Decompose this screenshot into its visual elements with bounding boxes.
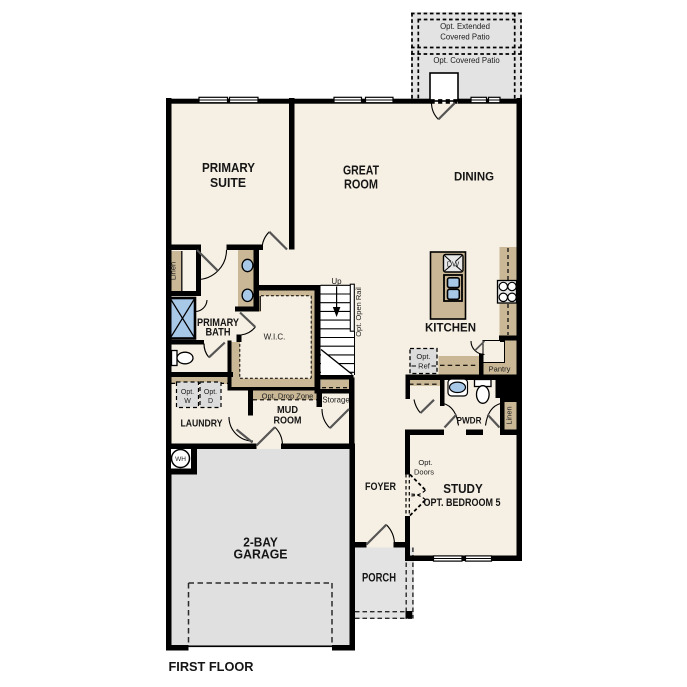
svg-text:Opt. Extended: Opt. Extended bbox=[440, 22, 490, 31]
svg-text:FOYER: FOYER bbox=[365, 481, 396, 493]
svg-text:Doors: Doors bbox=[414, 468, 434, 477]
svg-text:Linen: Linen bbox=[505, 406, 514, 424]
svg-text:OPT. BEDROOM 5: OPT. BEDROOM 5 bbox=[424, 497, 501, 509]
svg-text:KITCHEN: KITCHEN bbox=[425, 321, 476, 335]
svg-text:Up: Up bbox=[331, 277, 342, 286]
svg-text:GARAGE: GARAGE bbox=[234, 547, 288, 562]
svg-text:BATH: BATH bbox=[206, 327, 231, 339]
svg-text:D: D bbox=[208, 398, 213, 405]
svg-text:Covered Patio: Covered Patio bbox=[440, 33, 490, 42]
svg-text:Opt.: Opt. bbox=[416, 352, 430, 361]
svg-text:Opt.: Opt. bbox=[181, 389, 194, 396]
svg-text:Opt. Covered Patio: Opt. Covered Patio bbox=[433, 56, 500, 65]
svg-text:FIRST FLOOR: FIRST FLOOR bbox=[169, 659, 254, 674]
svg-text:Storage: Storage bbox=[322, 396, 349, 405]
svg-text:STUDY: STUDY bbox=[443, 481, 483, 496]
svg-text:Pantry: Pantry bbox=[489, 365, 511, 374]
svg-text:DINING: DINING bbox=[454, 170, 494, 184]
svg-text:PWDR: PWDR bbox=[457, 416, 482, 426]
svg-text:DW: DW bbox=[447, 260, 460, 269]
svg-text:ROOM: ROOM bbox=[274, 415, 302, 427]
svg-text:PRIMARY: PRIMARY bbox=[202, 160, 255, 175]
svg-text:ROOM: ROOM bbox=[344, 177, 378, 192]
svg-text:GREAT: GREAT bbox=[343, 163, 379, 178]
svg-text:W: W bbox=[184, 398, 191, 405]
svg-text:Ref: Ref bbox=[418, 362, 431, 371]
svg-text:LAUNDRY: LAUNDRY bbox=[181, 418, 223, 430]
svg-text:Opt. Open Rail: Opt. Open Rail bbox=[354, 287, 363, 337]
svg-text:Opt.: Opt. bbox=[418, 458, 432, 467]
svg-text:WH: WH bbox=[175, 456, 186, 463]
svg-text:SUITE: SUITE bbox=[210, 175, 246, 190]
svg-text:PORCH: PORCH bbox=[362, 573, 396, 585]
svg-text:Opt.: Opt. bbox=[204, 389, 217, 396]
svg-text:Opt. Drop Zone: Opt. Drop Zone bbox=[262, 391, 314, 400]
svg-text:W.I.C.: W.I.C. bbox=[264, 333, 286, 342]
